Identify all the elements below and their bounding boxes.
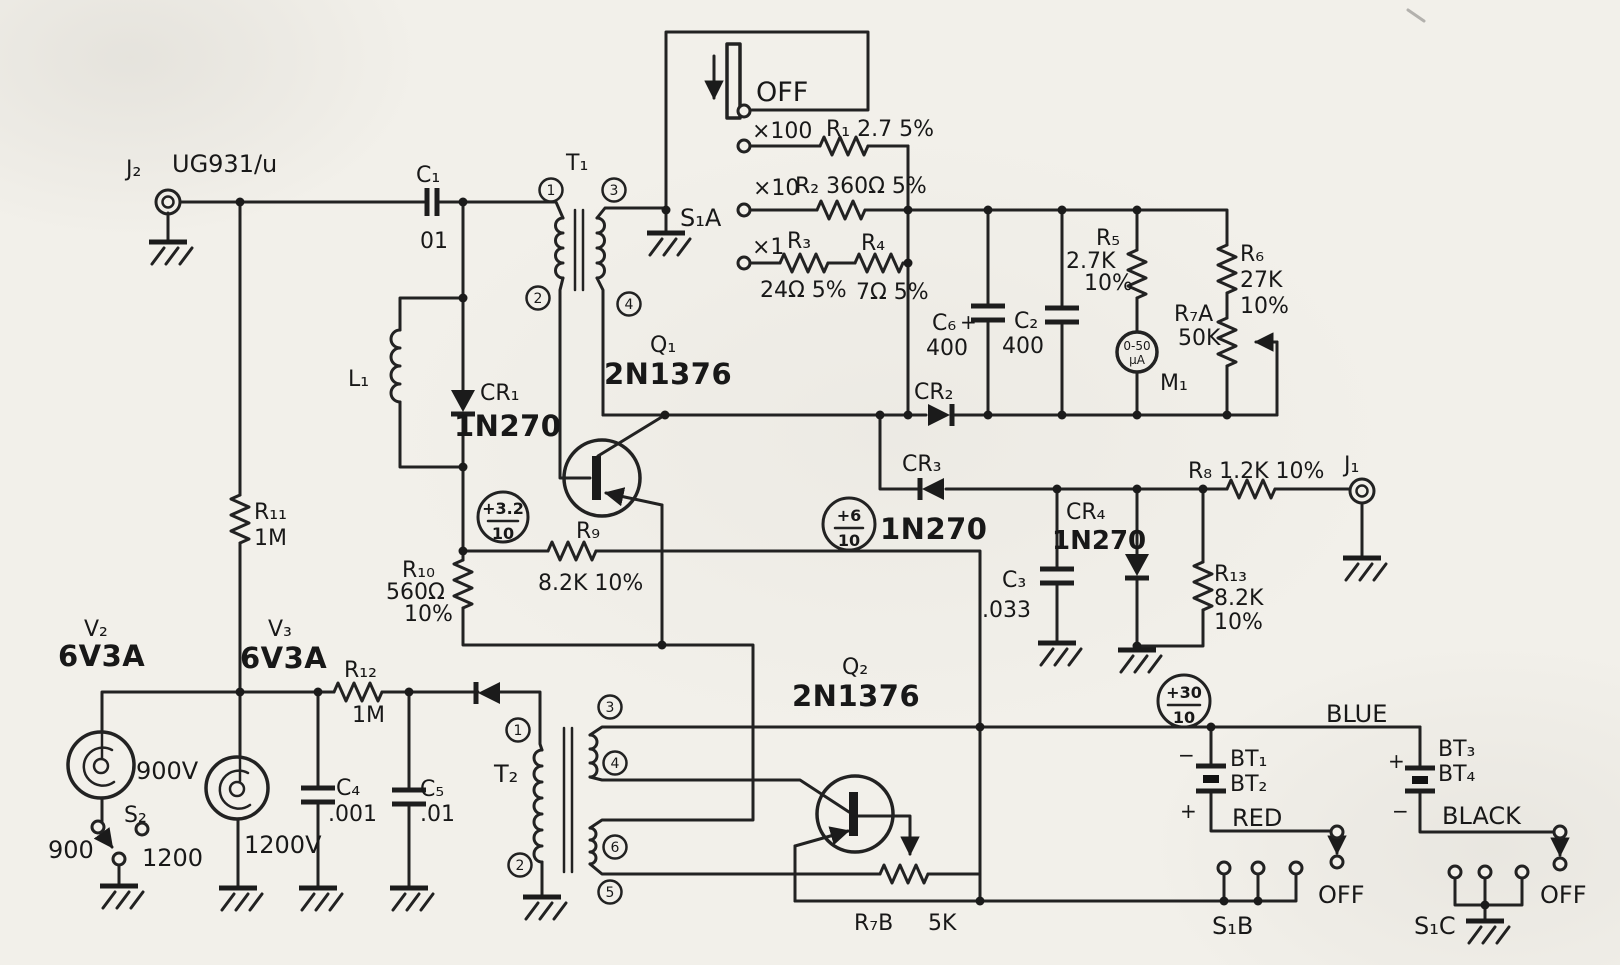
resistor-r2 (817, 201, 865, 219)
s1c-contact-off (1554, 858, 1566, 870)
label-r7b: R₇B (854, 911, 893, 936)
tp2-den: 10 (838, 531, 860, 550)
t2-pin1: 1 (514, 723, 523, 739)
label-bt12-plus: + (1180, 799, 1197, 823)
s1c-contact-black (1554, 826, 1566, 838)
t2-pin3: 3 (606, 700, 615, 716)
label-j1: J₁ (1342, 453, 1359, 478)
t1-pin4: 4 (625, 297, 634, 313)
label-s1c-off: OFF (1540, 881, 1587, 909)
t2-core (564, 728, 572, 872)
wire-t2-pin5-r7b (590, 864, 980, 874)
q2-base-bar (849, 792, 858, 836)
label-r2: R₂ 360Ω 5% (795, 174, 927, 199)
wire-q1-base (560, 278, 590, 478)
label-r9: R₉ (576, 519, 600, 544)
switch-s1b (1218, 826, 1343, 874)
label-x1: ×1 (752, 235, 784, 260)
label-c3-value: .033 (982, 598, 1031, 623)
s2-contact-900 (92, 821, 104, 833)
wire-r13 (1137, 489, 1203, 646)
transformer-t1: 1 3 2 4 (527, 179, 641, 316)
inductor-l1 (391, 330, 400, 402)
tp1-den: 10 (492, 524, 514, 543)
label-x100: ×100 (752, 119, 812, 144)
label-q2: Q₂ (842, 655, 868, 680)
label-j2-type: UG931/u (172, 150, 277, 178)
wire-bottom-rail (795, 874, 1296, 901)
schematic-drawing: 1 3 2 4 1 2 3 4 6 5 0-50 µA (0, 0, 1620, 965)
label-cr1: CR₁ (480, 381, 519, 406)
capacitor-c3 (1040, 569, 1074, 583)
meter-m1: 0-50 µA (1117, 332, 1157, 372)
diode-cr4 (1125, 554, 1149, 578)
label-c6-plus: + (960, 310, 977, 334)
label-v2-voltage: 900V (136, 757, 199, 785)
resistor-r9 (548, 542, 596, 560)
label-bt12-minus: − (1178, 743, 1195, 767)
connector-j1 (1350, 479, 1374, 503)
label-v3: V₃ (268, 617, 292, 642)
label-c6-value: 400 (926, 336, 968, 361)
diode-t2-input (476, 682, 500, 704)
t2-pin6: 6 (611, 840, 620, 856)
m1-face-unit: µA (1129, 353, 1146, 367)
tube-v2 (68, 732, 134, 798)
v3-arc (220, 771, 250, 809)
label-r11-value: 1M (254, 526, 287, 551)
label-r10-tol: 10% (404, 602, 453, 627)
label-s1c: S₁C (1414, 912, 1456, 940)
resistor-r13 (1194, 562, 1212, 610)
label-bt34-minus: − (1392, 799, 1409, 823)
label-c2: C₂ (1014, 309, 1038, 334)
label-r12-value: 1M (352, 703, 385, 728)
wire-s2-blade (101, 832, 112, 847)
wire-s1c (1455, 878, 1522, 919)
label-v3-type: 6V3A (240, 641, 327, 675)
tp2-value: +6 (837, 506, 862, 525)
label-r7b-value: 5K (928, 911, 957, 936)
schematic-page: 1 3 2 4 1 2 3 4 6 5 0-50 µA (0, 0, 1620, 965)
switch-s1a (714, 44, 750, 269)
connector-j2 (156, 190, 180, 214)
label-c3: C₃ (1002, 568, 1026, 593)
label-bt34-plus: + (1388, 749, 1405, 773)
resistor-r7b (880, 865, 928, 883)
label-bt2: BT₂ (1230, 772, 1267, 797)
label-bt4: BT₄ (1438, 762, 1476, 787)
v3-element (230, 782, 244, 796)
label-c1: C₁ (416, 163, 440, 188)
label-s1b: S₁B (1212, 912, 1253, 940)
label-r6: R₆ (1240, 242, 1264, 267)
testpoint-2: +6 10 (823, 498, 875, 550)
t1-pin2: 2 (534, 291, 543, 307)
resistor-r6 (1218, 245, 1236, 293)
wire-blue-rail (590, 727, 1420, 735)
label-cr3-type: 1N270 (880, 512, 987, 546)
label-r6-tol: 10% (1240, 294, 1289, 319)
t2-primary-coil (534, 750, 542, 862)
resistor-r10 (454, 560, 472, 608)
t2-pin5: 5 (606, 885, 615, 901)
t1-pin1: 1 (547, 183, 556, 199)
tp3-den: 10 (1173, 708, 1195, 727)
s2-contact-common (113, 853, 125, 865)
scan-mark (1408, 10, 1424, 21)
t1-primary-coil (556, 218, 563, 278)
label-j2: J₂ (124, 157, 141, 182)
label-c2-value: 400 (1002, 334, 1044, 359)
q1-base-bar (592, 456, 601, 500)
label-c6: C₆ (932, 311, 956, 336)
label-v3-voltage: 1200V (244, 831, 322, 859)
transistor-q2 (817, 776, 893, 852)
label-r12: R₁₂ (344, 658, 377, 683)
diode-cr3 (920, 478, 944, 500)
label-s1a-off: OFF (756, 77, 808, 108)
label-r9-value: 8.2K 10% (538, 571, 643, 596)
label-r1: R₁ 2.7 5% (826, 117, 934, 142)
label-black: BLACK (1442, 802, 1522, 830)
capacitor-c2 (1045, 308, 1079, 322)
label-r13: R₁₃ (1214, 562, 1247, 587)
label-t1: T₁ (565, 151, 588, 176)
label-s1a: S₁A (680, 204, 722, 232)
label-r13-value: 8.2K (1214, 586, 1264, 611)
testpoint-3: +30 10 (1158, 675, 1210, 727)
wires (101, 10, 1560, 919)
label-red: RED (1232, 804, 1282, 832)
label-cr4-type: 1N270 (1052, 526, 1146, 556)
label-c5-value: .01 (420, 802, 455, 827)
label-bt1: BT₁ (1230, 747, 1267, 772)
s1a-contact-off (738, 105, 750, 117)
diode-cr2 (928, 404, 952, 426)
label-s2-900: 900 (48, 836, 94, 864)
battery-bt1-bt2 (1196, 766, 1226, 791)
tube-v3 (206, 757, 268, 819)
s1a-contact-x10 (738, 204, 750, 216)
switch-s1c (1449, 826, 1566, 878)
label-c4: C₄ (336, 776, 360, 801)
label-blue: BLUE (1326, 700, 1387, 728)
wire-input (168, 202, 563, 240)
t1-secondary-coil (597, 218, 605, 278)
label-c1-value: 01 (420, 229, 448, 254)
v2-element (94, 759, 108, 773)
t1-core (575, 210, 583, 290)
t2-pin4: 4 (611, 756, 620, 772)
s1b-contact-off (1331, 856, 1343, 868)
label-r11: R₁₁ (254, 500, 287, 525)
label-l1: L₁ (348, 367, 369, 392)
label-s1b-off: OFF (1318, 881, 1365, 909)
resistor-r7a (1218, 318, 1236, 366)
label-q1-type: 2N1376 (604, 357, 732, 391)
label-r5: R₅ (1096, 226, 1120, 251)
tp1-value: +3.2 (482, 499, 524, 518)
label-s2: S₂ (124, 803, 147, 828)
resistor-r3 (780, 254, 828, 272)
t2-secondary-upper-coil (590, 735, 597, 777)
s1b-contact-red (1331, 826, 1343, 838)
resistor-r12 (334, 683, 382, 701)
wire-q2-collector (858, 816, 910, 854)
label-r3-value: 24Ω 5% (760, 278, 847, 303)
testpoint-1: +3.2 10 (478, 492, 528, 543)
wire-l1-cr1-r10 (400, 202, 753, 828)
label-c5: C₅ (420, 777, 444, 802)
capacitor-c4 (301, 788, 335, 802)
capacitors (301, 188, 1079, 804)
label-r7a-value: 50K (1178, 326, 1221, 351)
label-x10: ×10 (753, 176, 799, 201)
battery-bt3-bt4 (1405, 768, 1435, 791)
label-r5-tol: 10% (1084, 271, 1133, 296)
label-r8: R₈ 1.2K 10% (1188, 459, 1324, 484)
label-c4-value: .001 (328, 802, 377, 827)
t1-pin3: 3 (610, 183, 619, 199)
t2-secondary-lower-coil (590, 828, 596, 864)
label-cr1-type: 1N270 (454, 409, 561, 443)
capacitor-c1 (427, 188, 437, 216)
label-cr4: CR₄ (1066, 500, 1106, 525)
label-v2-type: 6V3A (58, 639, 145, 673)
label-r4: R₄ (861, 231, 885, 256)
tp3-value: +30 (1166, 683, 1202, 702)
label-t2: T₂ (493, 760, 518, 788)
label-s2-1200: 1200 (142, 844, 203, 872)
label-r6-value: 27K (1240, 268, 1283, 293)
label-bt3: BT₃ (1438, 737, 1475, 762)
t2-pin2: 2 (516, 858, 525, 874)
label-m1: M₁ (1160, 371, 1188, 396)
v2-arc (84, 748, 114, 786)
label-r3: R₃ (787, 229, 811, 254)
resistor-r4 (855, 254, 903, 272)
s1a-contact-x1 (738, 257, 750, 269)
m1-face-range: 0-50 (1123, 339, 1150, 353)
label-q1: Q₁ (650, 333, 676, 358)
label-q2-type: 2N1376 (792, 679, 920, 713)
label-r7a: R₇A (1174, 302, 1213, 327)
label-r13-tol: 10% (1214, 610, 1263, 635)
label-cr3: CR₃ (902, 452, 941, 477)
label-cr2: CR₂ (914, 380, 953, 405)
resistor-r11 (231, 495, 249, 543)
wire-q1-collector (598, 415, 665, 456)
s1a-contact-x100 (738, 140, 750, 152)
label-r4-value: 7Ω 5% (856, 280, 929, 305)
wire-q2-base (590, 777, 849, 812)
